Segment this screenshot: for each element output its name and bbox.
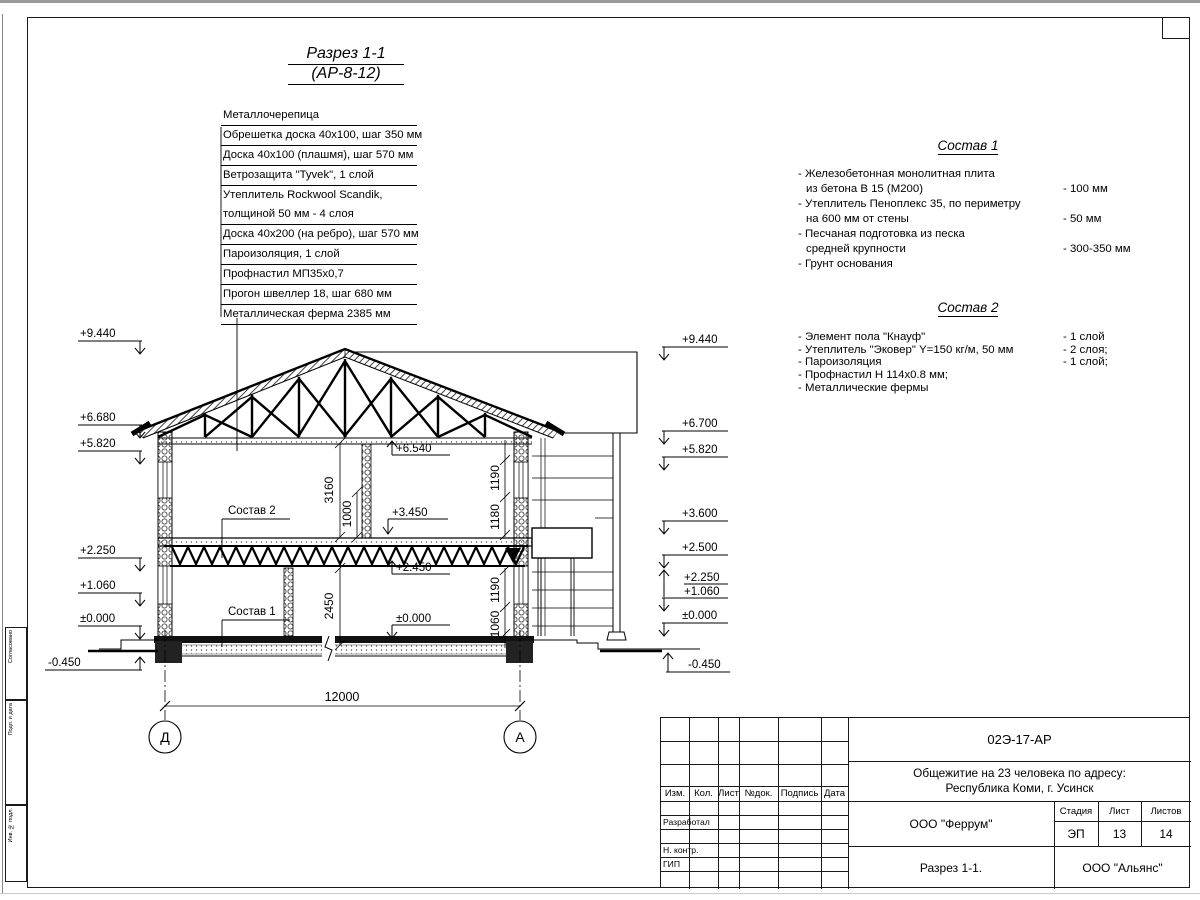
tb-row-gip: ГИП	[661, 857, 720, 871]
tb-row-ncontr: Н. контр.	[661, 843, 720, 857]
elev-left-2: +5.820	[80, 438, 116, 450]
elev-left-6: -0.450	[48, 657, 81, 669]
tb-object-name: Общежитие на 23 человека по адресу: Респ…	[848, 761, 1191, 801]
dim-1190a: 1190	[488, 465, 502, 491]
tb-designer-org: ООО "Феррум"	[848, 801, 1054, 846]
roof	[132, 349, 564, 438]
elev-left-5: ±0.000	[80, 613, 115, 625]
tb-object-line1: Общежитие на 23 человека по адресу:	[913, 766, 1126, 781]
tb-col-list: Лист	[718, 786, 739, 801]
elev-left-1: +6.680	[80, 412, 116, 424]
elev-left-3: +2.250	[80, 545, 116, 557]
dim-1190b: 1190	[488, 577, 502, 603]
tb-col-izm: Изм.	[661, 786, 689, 801]
elev-left-0: +9.440	[80, 328, 116, 340]
elev-inner-1: +3.450	[392, 507, 428, 519]
window	[158, 462, 528, 604]
truss-web	[158, 359, 532, 437]
dim-1180: 1180	[488, 504, 502, 530]
tb-doc-number: 02Э-17-АР	[848, 718, 1191, 761]
elev-right-1: +6.700	[682, 418, 718, 430]
axis-bubble-a: А	[515, 729, 525, 745]
elev-right-6: +1.060	[684, 586, 720, 598]
elev-right-2: +5.820	[682, 444, 718, 456]
inner-label-sostav1: Состав 1	[228, 606, 276, 618]
elev-inner-2: +2.450	[396, 562, 432, 574]
tb-sheet-label: Лист	[1098, 801, 1141, 821]
span-dim-text: 12000	[325, 690, 360, 704]
tb-sheets-value: 14	[1141, 821, 1191, 846]
title-block: Изм. Кол. Лист №док. Подпись Дата Разраб…	[660, 717, 1190, 888]
elev-inner-0: +6.540	[396, 443, 432, 455]
tb-col-data: Дата	[821, 786, 848, 801]
dim-1060: 1060	[488, 610, 502, 637]
tb-sheets-label: Листов	[1141, 801, 1191, 821]
inner-label-sostav2: Состав 2	[228, 505, 276, 517]
ceiling-chord	[158, 438, 532, 444]
tb-stage-label: Стадия	[1054, 801, 1098, 821]
tb-object-line2: Республика Коми, г. Усинск	[945, 781, 1093, 796]
elev-inner-3: ±0.000	[396, 613, 431, 625]
dim-3160: 3160	[322, 476, 336, 503]
tb-drawing-name: Разрез 1-1.	[848, 846, 1054, 889]
ground-slab	[154, 634, 534, 663]
elev-right-5: +2.250	[684, 572, 720, 584]
tb-stage-value: ЭП	[1054, 821, 1098, 846]
elev-right-3: +3.600	[682, 508, 718, 520]
elev-right-8: -0.450	[688, 659, 721, 671]
walls	[158, 432, 528, 638]
tb-col-podpis: Подпись	[778, 786, 821, 801]
axis-bubble-d: Д	[160, 729, 170, 745]
tb-col-doc: №док.	[739, 786, 778, 801]
tb-col-kol: Кол.	[689, 786, 718, 801]
tb-client-org: ООО "Альянс"	[1054, 846, 1191, 889]
elev-left-4: +1.060	[80, 580, 116, 592]
drawing-sheet: { "drawing_title": {"line1": "Разрез 1-1…	[0, 0, 1200, 900]
elev-right-0: +9.440	[682, 334, 718, 346]
tb-sheet-value: 13	[1098, 821, 1141, 846]
dim-2450: 2450	[322, 592, 336, 619]
elev-right-4: +2.500	[682, 542, 718, 554]
dim-1000: 1000	[340, 500, 354, 527]
tb-row-developer: Разработал	[661, 815, 720, 829]
truss-web	[172, 547, 524, 564]
elev-right-7: ±0.000	[682, 610, 717, 622]
